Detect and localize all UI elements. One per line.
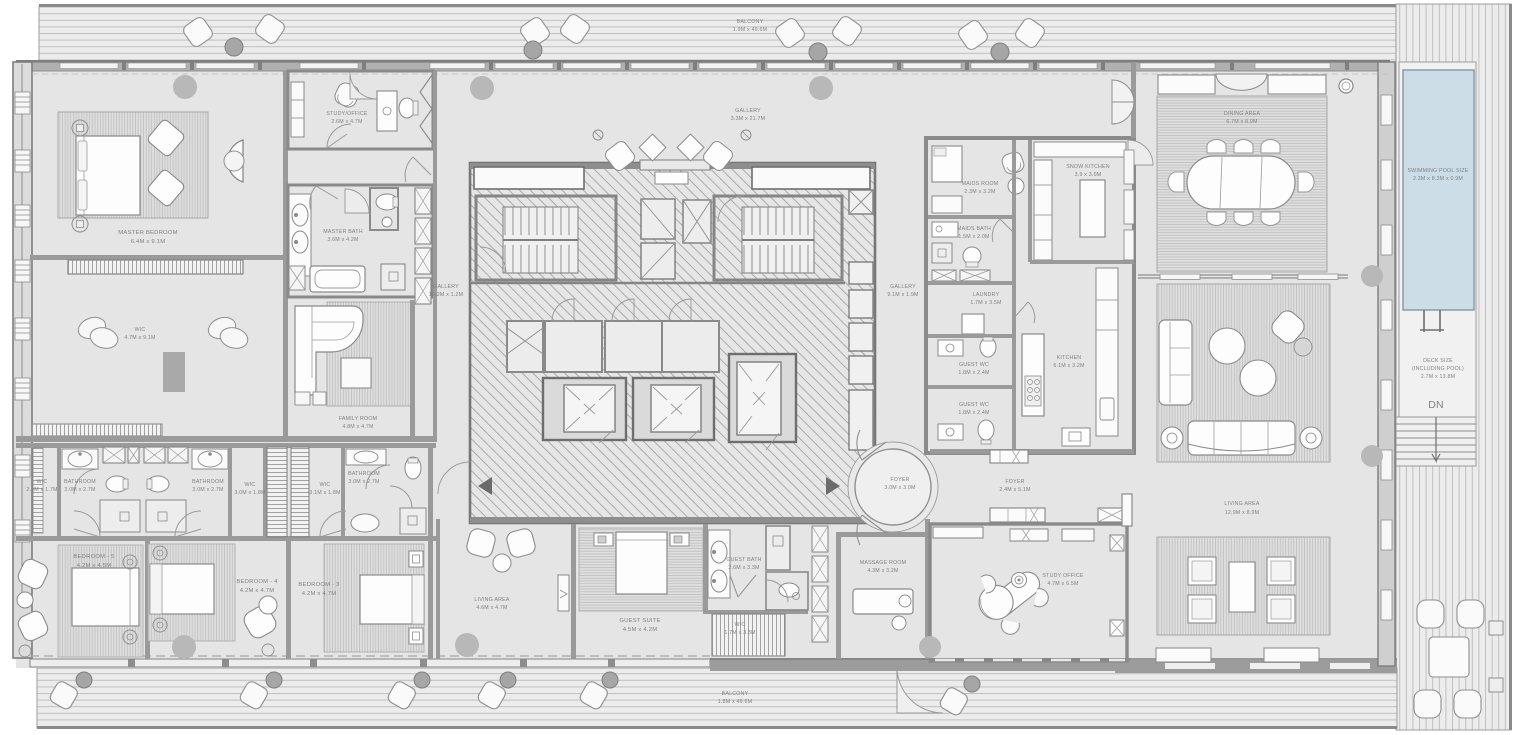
svg-text:2.6M x 4.7M: 2.6M x 4.7M <box>331 119 362 125</box>
svg-text:1.7M x 3.5M: 1.7M x 3.5M <box>970 300 1001 306</box>
svg-text:GALLERY: GALLERY <box>433 284 459 290</box>
svg-text:FOYER: FOYER <box>890 477 909 483</box>
svg-text:3.3M x 21.7M: 3.3M x 21.7M <box>731 116 766 122</box>
svg-text:GUEST BATH: GUEST BATH <box>726 557 761 563</box>
svg-text:2.3M x 8.3M x 0.9M: 2.3M x 8.3M x 0.9M <box>1413 176 1463 182</box>
svg-text:BATHROOM: BATHROOM <box>348 471 380 477</box>
svg-text:2.4M x 5.1M: 2.4M x 5.1M <box>999 487 1030 493</box>
svg-text:MAIDS BATH: MAIDS BATH <box>957 226 991 232</box>
svg-text:2.6M x 3.3M: 2.6M x 3.3M <box>728 565 759 571</box>
svg-text:BALCONY: BALCONY <box>722 691 749 697</box>
svg-text:SNOW KITCHEN: SNOW KITCHEN <box>1066 164 1110 170</box>
svg-text:4.2M x 4.7M: 4.2M x 4.7M <box>302 591 337 597</box>
svg-text:4.8M x 4.7M: 4.8M x 4.7M <box>342 424 373 430</box>
svg-text:KITCHEN: KITCHEN <box>1057 355 1082 361</box>
svg-text:GALLERY: GALLERY <box>890 284 916 290</box>
svg-text:6.1M x 3.2M: 6.1M x 3.2M <box>1053 363 1084 369</box>
svg-text:LAUNDRY: LAUNDRY <box>973 292 1000 298</box>
svg-text:4.7M x 9.1M: 4.7M x 9.1M <box>124 335 155 341</box>
svg-text:3.0M x 2.7M: 3.0M x 2.7M <box>64 487 95 493</box>
svg-text:BEDROOM - 5: BEDROOM - 5 <box>73 554 115 560</box>
svg-text:LIVING AREA: LIVING AREA <box>1224 501 1259 507</box>
svg-text:4.2M x 4.7M: 4.2M x 4.7M <box>240 588 275 594</box>
svg-text:3.0M x 1.8M: 3.0M x 1.8M <box>234 490 265 496</box>
svg-text:GALLERY: GALLERY <box>735 108 761 114</box>
svg-text:MASSAGE ROOM: MASSAGE ROOM <box>860 560 907 566</box>
svg-text:WIC: WIC <box>320 482 331 488</box>
svg-text:BALCONY: BALCONY <box>737 19 764 25</box>
svg-text:3.9 x 3.0M: 3.9 x 3.0M <box>1075 172 1102 178</box>
svg-text:DECK SIZE: DECK SIZE <box>1423 358 1453 364</box>
svg-text:MASTER BATH: MASTER BATH <box>323 229 362 235</box>
svg-text:GUEST WC: GUEST WC <box>959 362 989 368</box>
svg-text:2.7M x 13.8M: 2.7M x 13.8M <box>1421 374 1456 380</box>
svg-text:4.3M x 3.2M: 4.3M x 3.2M <box>867 568 898 574</box>
svg-text:(INCLUDING POOL): (INCLUDING POOL) <box>1412 366 1464 372</box>
svg-text:MAIDS ROOM: MAIDS ROOM <box>962 181 999 187</box>
svg-text:GUEST SUITE: GUEST SUITE <box>619 618 660 624</box>
svg-text:BEDROOM - 4: BEDROOM - 4 <box>236 579 278 585</box>
svg-text:3.1M x 1.8M: 3.1M x 1.8M <box>309 490 340 496</box>
svg-text:2.5M x 1.7M: 2.5M x 1.7M <box>26 487 57 493</box>
svg-text:LIVING AREA: LIVING AREA <box>474 597 509 603</box>
svg-text:15.2M x 1.2M: 15.2M x 1.2M <box>429 292 464 298</box>
svg-text:BATHROOM: BATHROOM <box>64 479 96 485</box>
svg-text:9.1M x 1.9M: 9.1M x 1.9M <box>887 292 918 298</box>
svg-text:4.2M x 4.5M: 4.2M x 4.5M <box>77 563 112 569</box>
svg-text:4.6M x 4.7M: 4.6M x 4.7M <box>476 605 507 611</box>
svg-text:BATHROOM: BATHROOM <box>192 479 224 485</box>
svg-text:DINING AREA: DINING AREA <box>1224 111 1261 117</box>
svg-text:FAMILY ROOM: FAMILY ROOM <box>339 416 378 422</box>
svg-text:STUDY/OFFICE: STUDY/OFFICE <box>326 111 368 117</box>
svg-text:6.4M x 9.1M: 6.4M x 9.1M <box>131 239 166 245</box>
svg-text:WIC: WIC <box>245 482 256 488</box>
svg-text:2.3M x 3.2M: 2.3M x 3.2M <box>964 189 995 195</box>
svg-text:BEDROOM - 3: BEDROOM - 3 <box>298 582 340 588</box>
svg-text:1.5M x 2.0M: 1.5M x 2.0M <box>958 234 989 240</box>
svg-text:1.8M x 49.6M: 1.8M x 49.6M <box>718 699 753 705</box>
svg-text:1.7M x 3.3M: 1.7M x 3.3M <box>724 630 755 636</box>
svg-text:WIC: WIC <box>37 479 48 485</box>
svg-text:GUEST WC: GUEST WC <box>959 402 989 408</box>
svg-text:STUDY OFFICE: STUDY OFFICE <box>1042 573 1083 579</box>
svg-text:3.0M x 2.7M: 3.0M x 2.7M <box>348 479 379 485</box>
svg-text:SWIMMING POOL SIZE: SWIMMING POOL SIZE <box>1407 168 1468 174</box>
svg-text:1.8M x 2.4M: 1.8M x 2.4M <box>958 370 989 376</box>
svg-text:1.9M x 49.6M: 1.9M x 49.6M <box>733 27 768 33</box>
svg-text:4.7M x 6.5M: 4.7M x 6.5M <box>1047 581 1078 587</box>
svg-text:WIC: WIC <box>135 327 146 333</box>
svg-text:3.6M x 4.2M: 3.6M x 4.2M <box>327 237 358 243</box>
svg-text:FOYER: FOYER <box>1005 479 1024 485</box>
svg-text:DN: DN <box>1428 399 1444 411</box>
svg-text:WIC: WIC <box>735 622 746 628</box>
svg-text:3.0M x 2.7M: 3.0M x 2.7M <box>192 487 223 493</box>
svg-text:3.0M x 3.0M: 3.0M x 3.0M <box>884 485 915 491</box>
svg-text:12.9M x 8.9M: 12.9M x 8.9M <box>1225 510 1260 516</box>
svg-text:4.5M x 4.2M: 4.5M x 4.2M <box>623 627 658 633</box>
svg-text:6.7M x 8.9M: 6.7M x 8.9M <box>1226 119 1257 125</box>
svg-text:1.8M x 2.4M: 1.8M x 2.4M <box>958 410 989 416</box>
svg-text:MASTER BEDROOM: MASTER BEDROOM <box>118 230 177 236</box>
